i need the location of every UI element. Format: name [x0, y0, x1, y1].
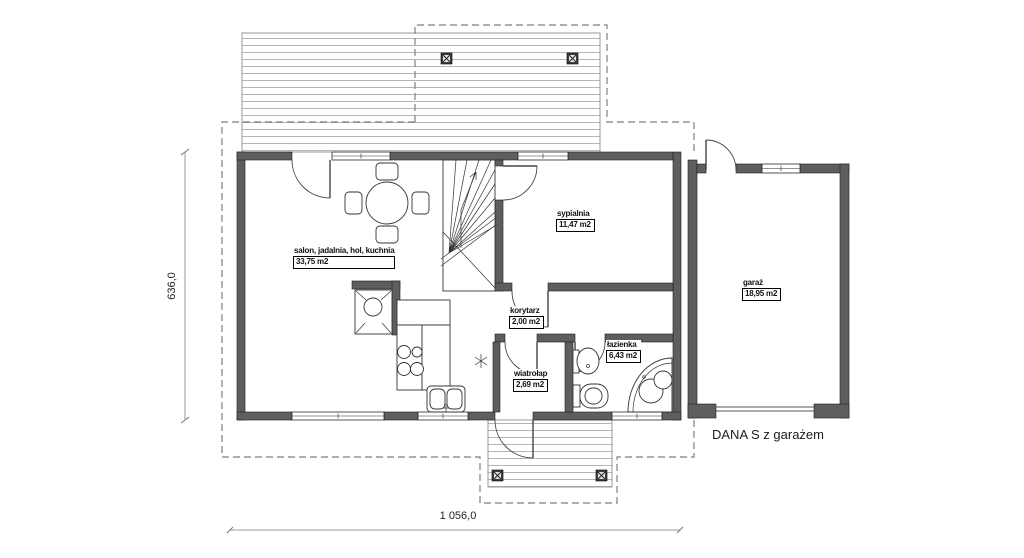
staircase — [441, 160, 497, 291]
wall-segment — [237, 152, 292, 160]
wall-segment — [495, 283, 512, 291]
room-label-wiatrolap: wiatrołap 2,69 m2 — [513, 369, 548, 392]
wall-segment — [565, 342, 573, 412]
wall-segment — [840, 164, 849, 418]
wall-segment — [533, 412, 612, 420]
room-area: 6,43 m2 — [606, 351, 641, 362]
wall-segment — [548, 283, 673, 291]
window — [518, 152, 568, 160]
dimension-line-horizontal — [227, 527, 683, 533]
room-area: 2,69 m2 — [513, 380, 548, 391]
garage-gate — [716, 407, 814, 411]
toilet — [573, 384, 608, 408]
wall-segment — [537, 334, 575, 342]
deck-post — [492, 470, 503, 481]
wall-segment — [390, 152, 518, 160]
room-area: 33,75 m2 — [293, 257, 395, 268]
deck-post — [596, 470, 607, 481]
wall-segment — [673, 152, 681, 420]
wall-segment — [237, 152, 245, 420]
wall-segment — [697, 164, 706, 173]
room-label-korytarz: korytarz 2,00 m2 — [509, 306, 544, 329]
plan-title: DANA S z garażem — [712, 427, 824, 442]
room-label-salon: salon, jadalnia, hol, kuchnia 33,75 m2 — [293, 246, 395, 269]
wall-segment — [688, 404, 716, 418]
window — [418, 412, 468, 420]
floor-plan-canvas: salon, jadalnia, hol, kuchnia 33,75 m2 s… — [0, 0, 1024, 558]
room-name: korytarz — [509, 306, 544, 317]
entrance-porch-deck — [488, 420, 612, 487]
deck-post — [441, 53, 452, 64]
wall-segment — [736, 164, 762, 173]
wall-segment — [495, 200, 503, 291]
kitchen-sink — [427, 386, 465, 412]
wall-segment — [493, 342, 500, 412]
room-name: łazienka — [606, 340, 641, 351]
window — [292, 412, 384, 420]
dimension-label-height: 636,0 — [166, 264, 178, 308]
terrace-floor — [242, 33, 600, 152]
top-terrace-deck — [242, 33, 600, 152]
floor-plan-drawing — [0, 0, 1024, 558]
bedroom-door — [503, 166, 537, 200]
room-area: 18,95 m2 — [742, 289, 781, 300]
room-area: 2,00 m2 — [509, 317, 544, 328]
chair — [376, 226, 398, 243]
wall-segment — [495, 160, 503, 166]
wall-segment — [688, 160, 697, 418]
room-name: sypialnia — [556, 209, 595, 220]
dimension-line-vertical — [181, 149, 189, 423]
wall-segment — [384, 412, 418, 420]
terrace-door — [292, 160, 330, 198]
room-name: wiatrołap — [513, 369, 548, 380]
room-name: salon, jadalnia, hol, kuchnia — [293, 246, 395, 257]
window — [332, 152, 390, 160]
deck-post — [567, 53, 578, 64]
chair — [412, 192, 429, 214]
boiler — [355, 290, 392, 334]
room-area: 11,47 m2 — [556, 220, 595, 231]
room-label-garaz: garaż 18,95 m2 — [742, 278, 781, 301]
wall-segment — [662, 412, 681, 420]
window — [762, 164, 800, 173]
chair — [376, 163, 398, 180]
chair — [345, 192, 362, 214]
dimension-label-width: 1 056,0 — [408, 510, 508, 522]
room-label-sypialnia: sypialnia 11,47 m2 — [556, 209, 595, 232]
kitchen-counter — [397, 300, 450, 390]
chimney-star-symbol — [475, 354, 487, 368]
bathroom-sink — [573, 348, 599, 374]
wall-segment — [814, 404, 849, 418]
wall-segment — [237, 412, 292, 420]
corner-bathtub — [628, 358, 672, 412]
window — [612, 412, 662, 420]
wall-segment — [468, 412, 495, 420]
garage-side-door — [706, 140, 736, 170]
wall-segment — [495, 334, 505, 342]
room-label-lazienka: łazienka 6,43 m2 — [606, 340, 641, 363]
room-name: garaż — [742, 278, 781, 289]
porch-floor — [488, 420, 612, 487]
wall-segment — [568, 152, 673, 160]
dining-table — [345, 163, 429, 243]
